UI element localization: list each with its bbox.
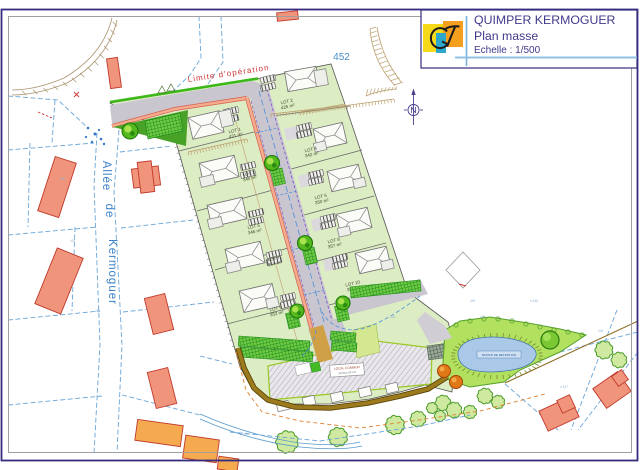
svg-text:Kermoguer: Kermoguer [106, 239, 118, 305]
svg-text:450: 450 [60, 177, 66, 181]
svg-text:446: 446 [390, 315, 396, 319]
svg-text:452: 452 [333, 52, 350, 63]
svg-text:445: 445 [598, 329, 604, 333]
svg-text:451: 451 [95, 309, 101, 313]
svg-text:25-04: 25-04 [240, 432, 248, 436]
svg-text:Echelle : 1/500: Echelle : 1/500 [474, 45, 541, 56]
svg-text:BASSIN DE RETENTION: BASSIN DE RETENTION [482, 353, 516, 357]
svg-text:Plan masse: Plan masse [474, 29, 538, 43]
svg-text:n 448: n 448 [530, 299, 538, 303]
svg-text:444: 444 [480, 315, 486, 319]
svg-text:n 447: n 447 [560, 385, 568, 389]
svg-text:Allée: Allée [100, 161, 112, 192]
svg-text:de: de [103, 204, 115, 219]
svg-text:452: 452 [70, 239, 76, 243]
svg-text:449: 449 [470, 299, 476, 303]
svg-text:QUIMPER KERMOGUER: QUIMPER KERMOGUER [474, 13, 616, 27]
